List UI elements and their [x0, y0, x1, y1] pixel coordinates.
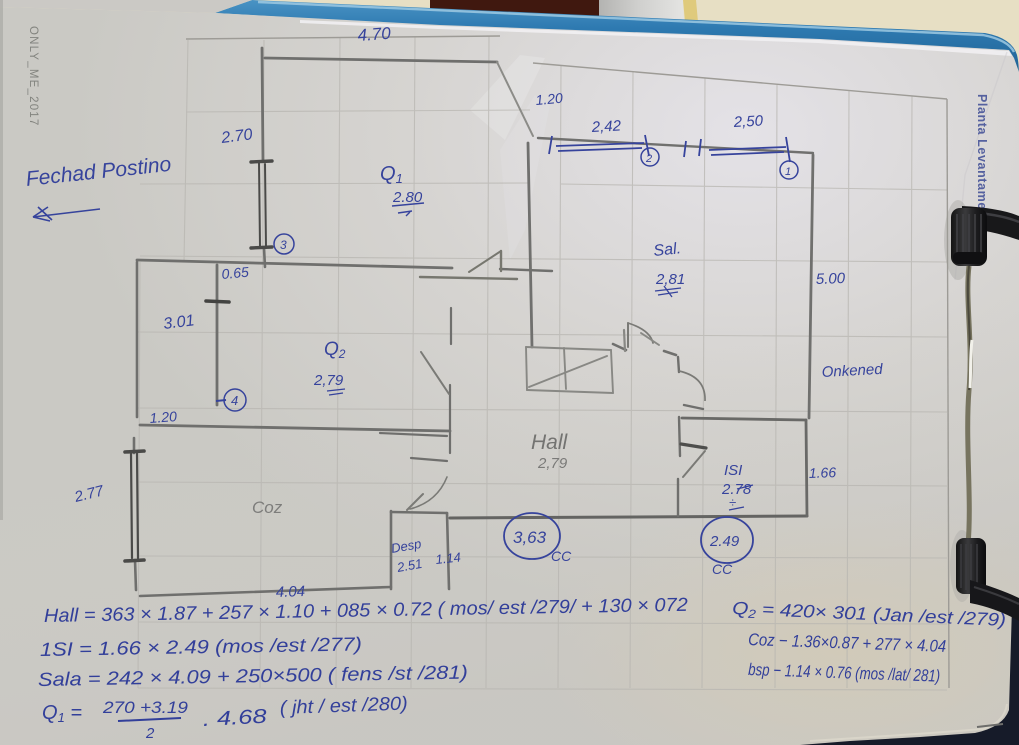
- svg-text:2,50: 2,50: [732, 112, 764, 131]
- svg-text:1.20: 1.20: [535, 90, 564, 108]
- svg-text:( jht / est /280): ( jht / est /280): [279, 694, 408, 719]
- svg-text:3,63: 3,63: [513, 528, 547, 547]
- svg-text:ONLY_ME_2017: ONLY_ME_2017: [27, 26, 39, 127]
- svg-text:2: 2: [145, 725, 155, 742]
- svg-text:1.20: 1.20: [149, 408, 178, 426]
- svg-text:2,79: 2,79: [537, 455, 568, 472]
- svg-text:0.65: 0.65: [221, 264, 250, 282]
- svg-text:CC: CC: [551, 548, 572, 564]
- svg-text:÷: ÷: [729, 495, 736, 510]
- svg-text:Coz: Coz: [252, 498, 283, 517]
- svg-text:1: 1: [785, 166, 791, 178]
- svg-text:4: 4: [231, 393, 238, 408]
- svg-text:270 +3.19: 270 +3.19: [102, 698, 189, 717]
- svg-text:2,81: 2,81: [655, 271, 685, 288]
- svg-text:2.78: 2.78: [721, 481, 752, 498]
- svg-text:Hall: Hall: [531, 431, 569, 454]
- svg-text:Onkened: Onkened: [821, 361, 883, 381]
- svg-text:2: 2: [645, 153, 652, 165]
- svg-text:2,42: 2,42: [590, 117, 622, 136]
- svg-text:2.49: 2.49: [709, 533, 740, 550]
- svg-text:1.66: 1.66: [809, 464, 837, 481]
- svg-text:3: 3: [280, 238, 287, 252]
- svg-text:CC: CC: [712, 561, 733, 577]
- svg-text:2,79: 2,79: [313, 372, 344, 389]
- svg-text:4.04: 4.04: [276, 583, 306, 601]
- svg-text:. 4.68: . 4.68: [202, 706, 267, 731]
- svg-text:4.70: 4.70: [357, 24, 392, 45]
- svg-text:1.14: 1.14: [435, 549, 462, 567]
- svg-text:Sal.: Sal.: [653, 240, 682, 260]
- svg-text:5.00: 5.00: [816, 270, 846, 288]
- svg-text:ISI: ISI: [724, 462, 742, 479]
